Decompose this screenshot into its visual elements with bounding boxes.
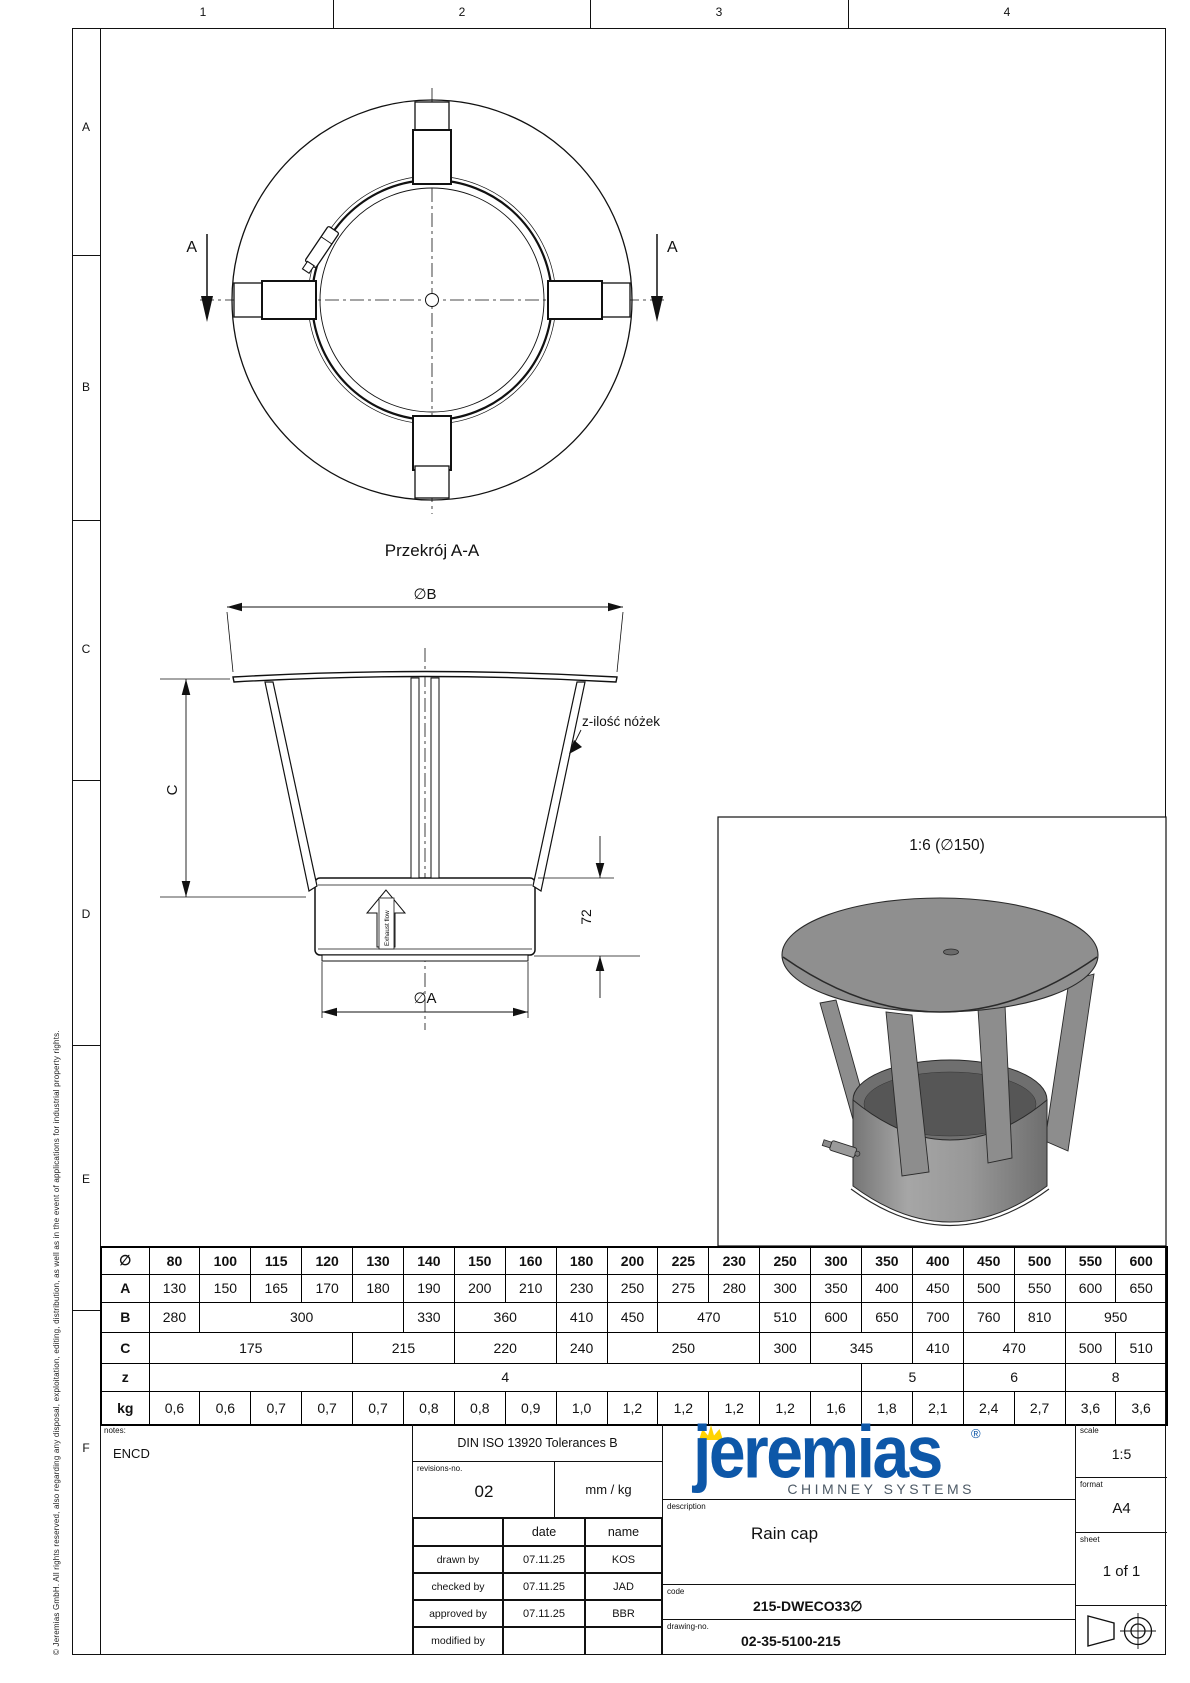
table-cell: 6 [963, 1363, 1065, 1391]
detail-3d-view: 1:6 (∅150) [718, 817, 1166, 1246]
table-row-label: B [101, 1302, 149, 1332]
table-cell: 2,7 [1014, 1391, 1065, 1425]
table-cell: 0,7 [251, 1391, 302, 1425]
sig-row-label: checked by [413, 1573, 503, 1600]
table-row: kg0,60,60,70,70,70,80,80,91,01,21,21,21,… [101, 1391, 1167, 1425]
table-cell: 700 [912, 1302, 963, 1332]
table-cell: 170 [302, 1274, 353, 1302]
table-cell: 300 [760, 1274, 811, 1302]
sheet-box: sheet 1 of 1 [1076, 1533, 1167, 1606]
table-size-header: 600 [1116, 1247, 1167, 1274]
leg-tab-south [413, 416, 451, 498]
table-cell: 450 [912, 1274, 963, 1302]
svg-text:C: C [164, 784, 181, 795]
table-cell: 5 [861, 1363, 963, 1391]
leg-tab-west [234, 281, 316, 319]
table-cell: 0,6 [149, 1391, 200, 1425]
table-cell: 250 [607, 1274, 658, 1302]
table-cell: 330 [403, 1302, 454, 1332]
table-size-header: 400 [912, 1247, 963, 1274]
table-corner: ∅ [101, 1247, 149, 1274]
leg-tab-north [413, 102, 451, 184]
table-cell: 470 [658, 1302, 760, 1332]
sig-row-date: 07.11.25 [503, 1546, 585, 1573]
table-size-header: 115 [251, 1247, 302, 1274]
table-cell: 180 [353, 1274, 404, 1302]
section-marker-left: A [186, 234, 213, 322]
table-cell: 240 [556, 1332, 607, 1363]
table-cell: 200 [454, 1274, 505, 1302]
table-size-header: 230 [709, 1247, 760, 1274]
table-cell: 3,6 [1065, 1391, 1116, 1425]
sig-row-label: approved by [413, 1600, 503, 1627]
table-cell: 1,2 [607, 1391, 658, 1425]
table-cell: 350 [811, 1274, 862, 1302]
table-cell: 210 [505, 1274, 556, 1302]
section-letter: A [667, 239, 678, 256]
revisions-no-box: revisions-no. 02 [413, 1462, 555, 1518]
drawing-no-label: drawing-no. [667, 1622, 709, 1631]
code-box: code 215-DWECO33∅ [663, 1585, 1076, 1620]
table-size-header: 80 [149, 1247, 200, 1274]
logo-subtitle: CHIMNEY SYSTEMS [723, 1481, 975, 1497]
description-box: description Rain cap [663, 1500, 1076, 1585]
table-cell: 280 [709, 1274, 760, 1302]
revisions-label: revisions-no. [417, 1464, 462, 1473]
table-size-header: 450 [963, 1247, 1014, 1274]
table-row-label: C [101, 1332, 149, 1363]
table-cell: 250 [607, 1332, 760, 1363]
format-box: format A4 [1076, 1478, 1167, 1533]
dim-72: 72 [534, 836, 640, 998]
table-size-header: 100 [200, 1247, 251, 1274]
svg-text:∅B: ∅B [413, 586, 436, 603]
logo-wordmark: jeremias [693, 1415, 941, 1489]
rear-leg-edge [411, 678, 419, 878]
scale-box: scale 1:5 [1076, 1424, 1167, 1478]
first-angle-projection-icon [1076, 1606, 1167, 1655]
table-cell: 4 [149, 1363, 861, 1391]
section-arrow [651, 296, 663, 322]
table-cell: 400 [861, 1274, 912, 1302]
sig-col-date: date [503, 1518, 585, 1546]
leg-right [533, 682, 585, 891]
table-cell: 410 [556, 1302, 607, 1332]
svg-text:z-ilość nóżek: z-ilość nóżek [582, 714, 660, 729]
table-cell: 450 [607, 1302, 658, 1332]
table-size-header: 200 [607, 1247, 658, 1274]
table-cell: 510 [760, 1302, 811, 1332]
table-size-header: 160 [505, 1247, 556, 1274]
leg-left [265, 682, 317, 891]
svg-text:∅A: ∅A [413, 990, 436, 1007]
table-cell: 410 [912, 1332, 963, 1363]
table-row: C175215220240250300345410470500510 [101, 1332, 1167, 1363]
code-label: code [667, 1587, 684, 1596]
section-arrow [201, 296, 213, 322]
table-cell: 220 [454, 1332, 556, 1363]
sig-row-date: 07.11.25 [503, 1573, 585, 1600]
center-mark [426, 294, 439, 307]
table-cell: 360 [454, 1302, 556, 1332]
size-table-wrap: ∅801001151201301401501601802002252302503… [100, 1246, 1168, 1426]
legs-count-callout: z-ilość nóżek [569, 714, 660, 754]
table-cell: 470 [963, 1332, 1065, 1363]
svg-text:72: 72 [578, 909, 594, 925]
scale-value: 1:5 [1076, 1446, 1167, 1462]
table-cell: 510 [1116, 1332, 1167, 1363]
cap-disc-3d [782, 898, 1098, 1012]
company-logo: jeremias ® CHIMNEY SYSTEMS [663, 1424, 1076, 1500]
table-cell: 300 [760, 1332, 811, 1363]
sheet-info-column: scale 1:5 format A4 sheet 1 of 1 [1075, 1424, 1166, 1655]
description-label: description [667, 1502, 706, 1511]
section-marker-right: A [651, 234, 678, 322]
table-cell: 550 [1014, 1274, 1065, 1302]
sig-row-label: modified by [413, 1627, 503, 1655]
table-cell: 1,0 [556, 1391, 607, 1425]
company-column: jeremias ® CHIMNEY SYSTEMS description R… [662, 1424, 1075, 1655]
sig-row-date: 07.11.25 [503, 1600, 585, 1627]
description-value: Rain cap [751, 1524, 818, 1544]
sig-row-label: drawn by [413, 1546, 503, 1573]
sig-row-name [585, 1627, 662, 1655]
detail-scale-label: 1:6 (∅150) [909, 837, 985, 854]
table-cell: 165 [251, 1274, 302, 1302]
table-size-header: 250 [760, 1247, 811, 1274]
table-cell: 8 [1065, 1363, 1167, 1391]
sig-col-name: name [585, 1518, 662, 1546]
table-size-header: 180 [556, 1247, 607, 1274]
table-cell: 650 [861, 1302, 912, 1332]
table-cell: 950 [1065, 1302, 1167, 1332]
title-block: notes: ENCD DIN ISO 13920 Tolerances B r… [100, 1424, 1166, 1655]
table-size-header: 300 [811, 1247, 862, 1274]
table-row-label: kg [101, 1391, 149, 1425]
size-table: ∅801001151201301401501601802002252302503… [100, 1246, 1168, 1426]
table-row: A130150165170180190200210230250275280300… [101, 1274, 1167, 1302]
table-cell: 2,4 [963, 1391, 1014, 1425]
table-cell: 3,6 [1116, 1391, 1167, 1425]
registered-mark-icon: ® [971, 1426, 981, 1441]
sig-corner [413, 1518, 503, 1546]
clamp-lock [300, 226, 339, 275]
table-cell: 190 [403, 1274, 454, 1302]
table-cell: 345 [811, 1332, 913, 1363]
table-cell: 175 [149, 1332, 353, 1363]
disc-center-hole [944, 949, 959, 955]
table-size-header: 550 [1065, 1247, 1116, 1274]
drawing-no-value: 02-35-5100-215 [741, 1633, 841, 1649]
table-row-label: A [101, 1274, 149, 1302]
table-size-header: 350 [861, 1247, 912, 1274]
table-cell: 500 [1065, 1332, 1116, 1363]
table-cell: 600 [811, 1302, 862, 1332]
table-cell: 230 [556, 1274, 607, 1302]
tolerances-box: DIN ISO 13920 Tolerances B [413, 1424, 662, 1462]
revision-column: DIN ISO 13920 Tolerances B revisions-no.… [413, 1424, 662, 1655]
table-size-header: 140 [403, 1247, 454, 1274]
table-cell: 650 [1116, 1274, 1167, 1302]
table-size-header: 120 [302, 1247, 353, 1274]
collar-side [315, 878, 535, 961]
table-cell: 0,8 [454, 1391, 505, 1425]
section-letter: A [186, 239, 197, 256]
table-row: z4568 [101, 1363, 1167, 1391]
top-view: A A Przekrój A-A [186, 88, 678, 560]
table-size-header: 500 [1014, 1247, 1065, 1274]
table-cell: 150 [200, 1274, 251, 1302]
units-box: mm / kg [555, 1462, 662, 1518]
revisions-box: revisions-no. 02 mm / kg [413, 1462, 662, 1518]
code-value: 215-DWECO33∅ [753, 1598, 862, 1615]
table-cell: 0,9 [505, 1391, 556, 1425]
sig-row-date [503, 1627, 585, 1655]
sig-row-name: BBR [585, 1600, 662, 1627]
table-cell: 600 [1065, 1274, 1116, 1302]
exhaust-flow-label: Exhaust flow [384, 910, 391, 946]
scale-label: scale [1080, 1426, 1099, 1435]
table-cell: 215 [353, 1332, 455, 1363]
table-cell: 300 [200, 1302, 404, 1332]
table-cell: 0,6 [200, 1391, 251, 1425]
notes-label: notes: [104, 1426, 126, 1435]
table-row-label: z [101, 1363, 149, 1391]
revisions-value: 02 [413, 1482, 555, 1502]
sheet-value: 1 of 1 [1076, 1563, 1167, 1580]
table-cell: 810 [1014, 1302, 1065, 1332]
notes-value: ENCD [113, 1446, 150, 1461]
format-label: format [1080, 1480, 1103, 1489]
dim-c: C [160, 679, 306, 897]
table-size-header: 150 [454, 1247, 505, 1274]
drawing-no-box: drawing-no. 02-35-5100-215 [663, 1620, 1076, 1655]
table-size-header: 225 [658, 1247, 709, 1274]
notes-box: notes: ENCD [100, 1424, 413, 1655]
table-cell: 130 [149, 1274, 200, 1302]
table-cell: 280 [149, 1302, 200, 1332]
table-cell: 275 [658, 1274, 709, 1302]
table-cell: 0,7 [353, 1391, 404, 1425]
section-title: Przekrój A-A [385, 541, 480, 560]
sheet-label: sheet [1080, 1535, 1100, 1544]
table-size-header: 130 [353, 1247, 404, 1274]
table-cell: 0,8 [403, 1391, 454, 1425]
format-value: A4 [1076, 1500, 1167, 1517]
leg-tab-east [548, 281, 630, 319]
table-cell: 500 [963, 1274, 1014, 1302]
sig-row-name: JAD [585, 1573, 662, 1600]
section-view: ∅B Exhaust flow [160, 586, 660, 1030]
table-cell: 0,7 [302, 1391, 353, 1425]
table-cell: 760 [963, 1302, 1014, 1332]
rear-leg-edge [431, 678, 439, 878]
drawing-sheet: 1 2 3 4 A B C D E F © Jeremias GmbH. All… [0, 0, 1190, 1683]
projection-box [1076, 1606, 1167, 1655]
sig-row-name: KOS [585, 1546, 662, 1573]
table-row: B280300330360410450470510600650700760810… [101, 1302, 1167, 1332]
signature-table: date name drawn by 07.11.25 KOS checked … [413, 1518, 662, 1655]
